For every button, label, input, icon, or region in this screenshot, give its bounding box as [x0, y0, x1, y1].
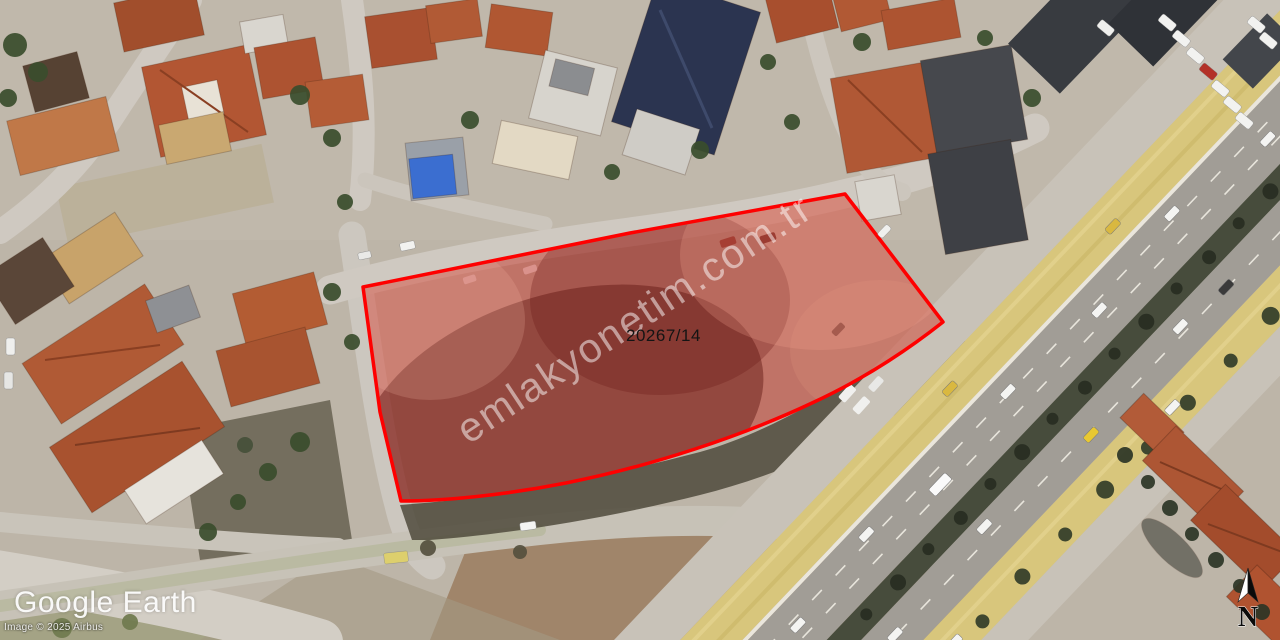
- compass-arrow-right-half: [1248, 568, 1258, 602]
- map-canvas[interactable]: [0, 0, 1280, 640]
- compass-north-indicator[interactable]: N: [1230, 566, 1266, 636]
- google-earth-satellite-view: emlakyonetim.com.tr 20267/14 Google Eart…: [0, 0, 1280, 640]
- compass-letter: N: [1238, 602, 1258, 633]
- compass-arrow-left-half: [1238, 568, 1248, 602]
